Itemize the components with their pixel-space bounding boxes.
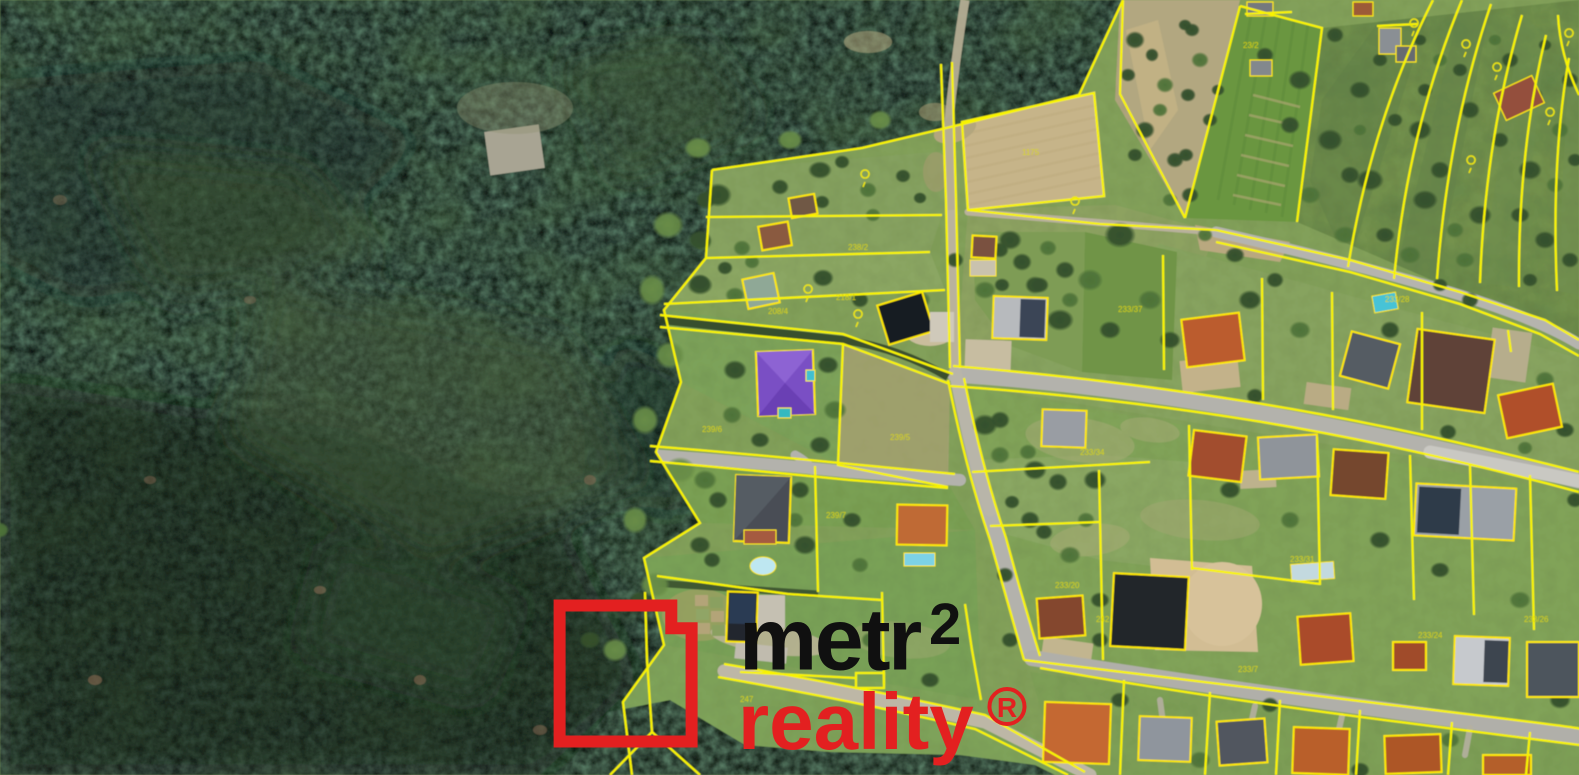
svg-text:238/2: 238/2 <box>848 243 869 252</box>
svg-text:239/7: 239/7 <box>826 511 847 520</box>
svg-text:208/4: 208/4 <box>768 307 789 316</box>
svg-text:233/34: 233/34 <box>1080 448 1105 457</box>
svg-text:233/24: 233/24 <box>1418 631 1443 640</box>
svg-text:218/1: 218/1 <box>836 293 857 302</box>
svg-text:2: 2 <box>929 592 961 657</box>
svg-text:233/28: 233/28 <box>1385 295 1410 304</box>
svg-text:1175: 1175 <box>1022 148 1040 157</box>
svg-text:239/6: 239/6 <box>702 425 723 434</box>
svg-text:metr: metr <box>739 590 921 689</box>
svg-text:233/7: 233/7 <box>1238 665 1259 674</box>
svg-text:233/37: 233/37 <box>1118 305 1143 314</box>
svg-text:239/5: 239/5 <box>890 433 911 442</box>
svg-text:233/26: 233/26 <box>1524 615 1549 624</box>
svg-text:23/2: 23/2 <box>1243 41 1259 50</box>
svg-text:242: 242 <box>1096 615 1110 624</box>
svg-text:233/31: 233/31 <box>1290 555 1315 564</box>
svg-text:R: R <box>997 692 1017 723</box>
svg-text:reality: reality <box>738 677 974 766</box>
svg-text:233/20: 233/20 <box>1055 581 1080 590</box>
